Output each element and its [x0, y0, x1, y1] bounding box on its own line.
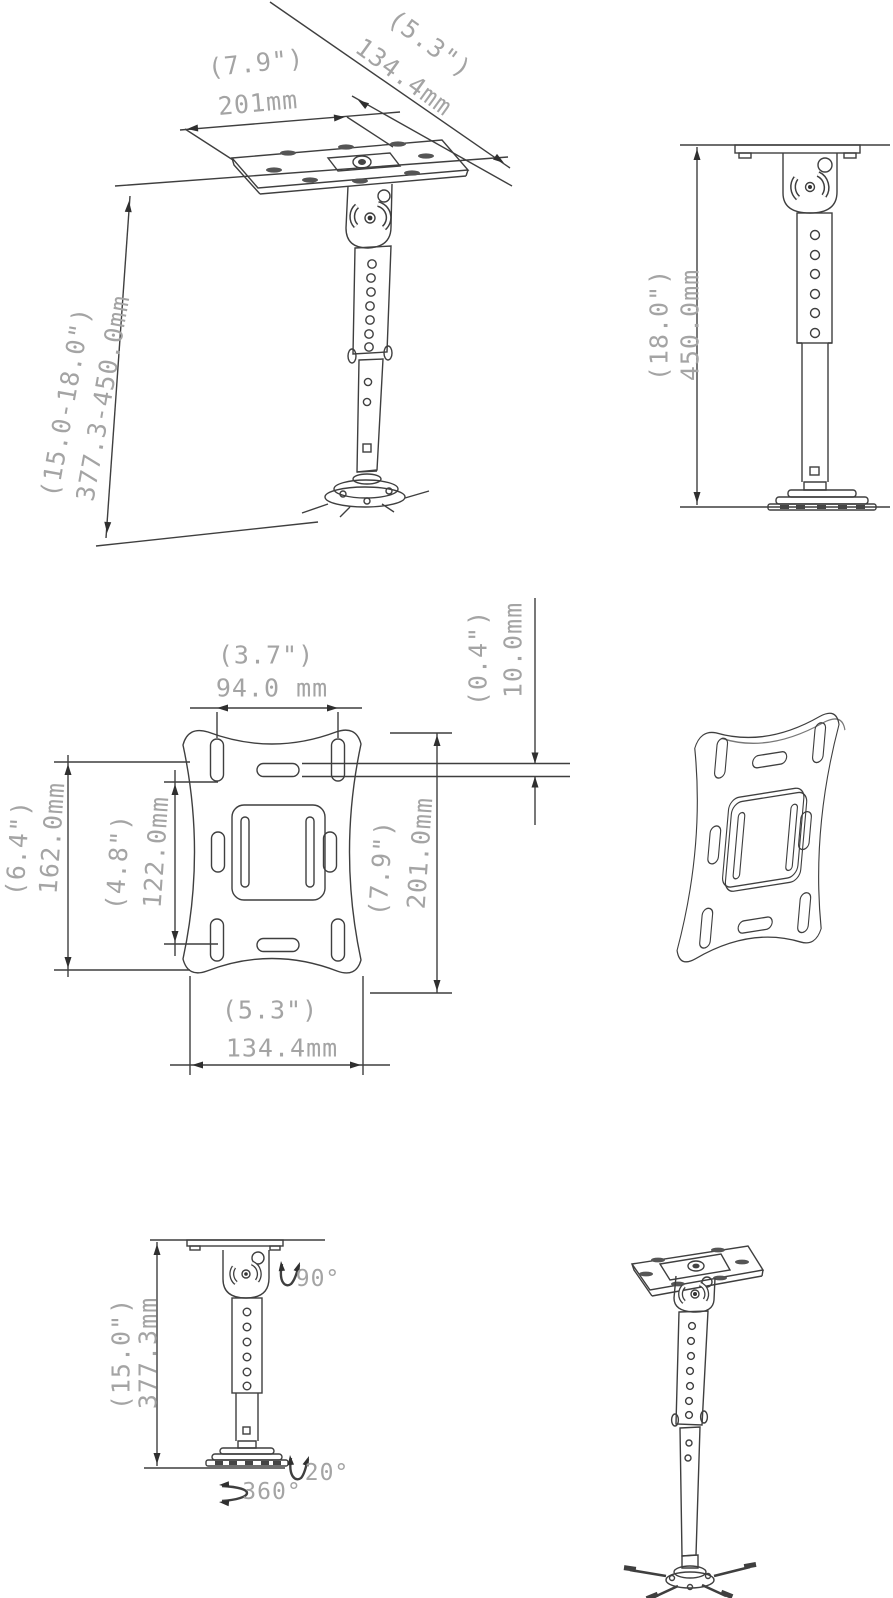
- dim-plate-slot-inch: (0.4"): [464, 610, 493, 706]
- dim-plate-width-mm: 134.4mm: [226, 1034, 338, 1063]
- dim-extended-height-inch: (18.0"): [645, 269, 674, 381]
- plate-iso-drawing: [640, 690, 880, 990]
- dim-plate-hole-span-inch: (3.7"): [218, 641, 314, 670]
- dim-plate-slot-mm: 10.0mm: [499, 602, 528, 698]
- dim-plate-width-inch: (5.3"): [222, 996, 318, 1025]
- dim-plate-hole-span-mm: 94.0 mm: [216, 674, 328, 703]
- dim-retracted-height-inch: (15.0"): [107, 1298, 136, 1410]
- angle-swivel-label: 360°: [242, 1479, 301, 1505]
- iso-plain-drawing: [600, 1210, 890, 1598]
- angle-tilt-top-label: 90°: [296, 1266, 341, 1292]
- iso-extended-drawing: [60, 0, 520, 560]
- view-iso-extended: [60, 0, 520, 560]
- view-plate-iso: [640, 690, 880, 990]
- angle-tilt-bottom-label: 20°: [305, 1460, 350, 1486]
- dim-retracted-height-mm: 377.3mm: [134, 1297, 163, 1409]
- dim-extended-height-mm: 450.0mm: [676, 269, 705, 381]
- view-iso-plain: [600, 1210, 890, 1598]
- dim-plate-outer-height-inch: (6.4"): [0, 799, 36, 897]
- technical-drawing-page: (7.9") 201mm (5.3") 134.4mm (15.0-18.0")…: [0, 0, 893, 1598]
